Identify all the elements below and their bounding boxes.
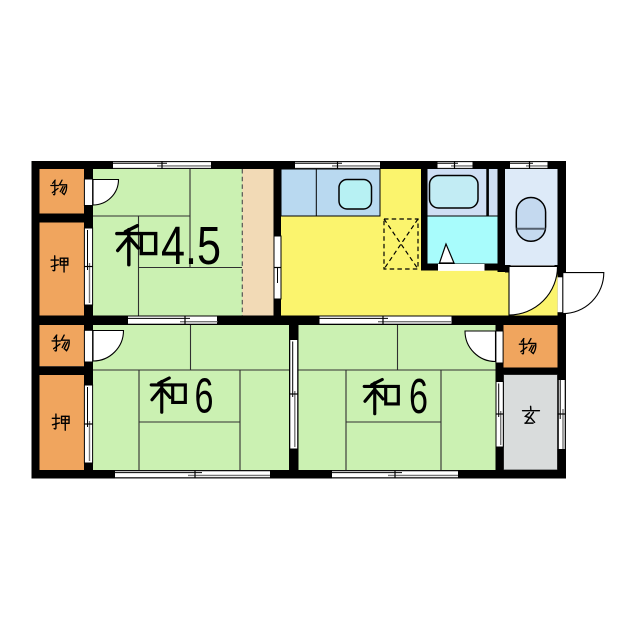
svg-text:4.5: 4.5 — [161, 216, 221, 276]
svg-text:6: 6 — [195, 370, 214, 424]
svg-text:6: 6 — [409, 370, 428, 424]
